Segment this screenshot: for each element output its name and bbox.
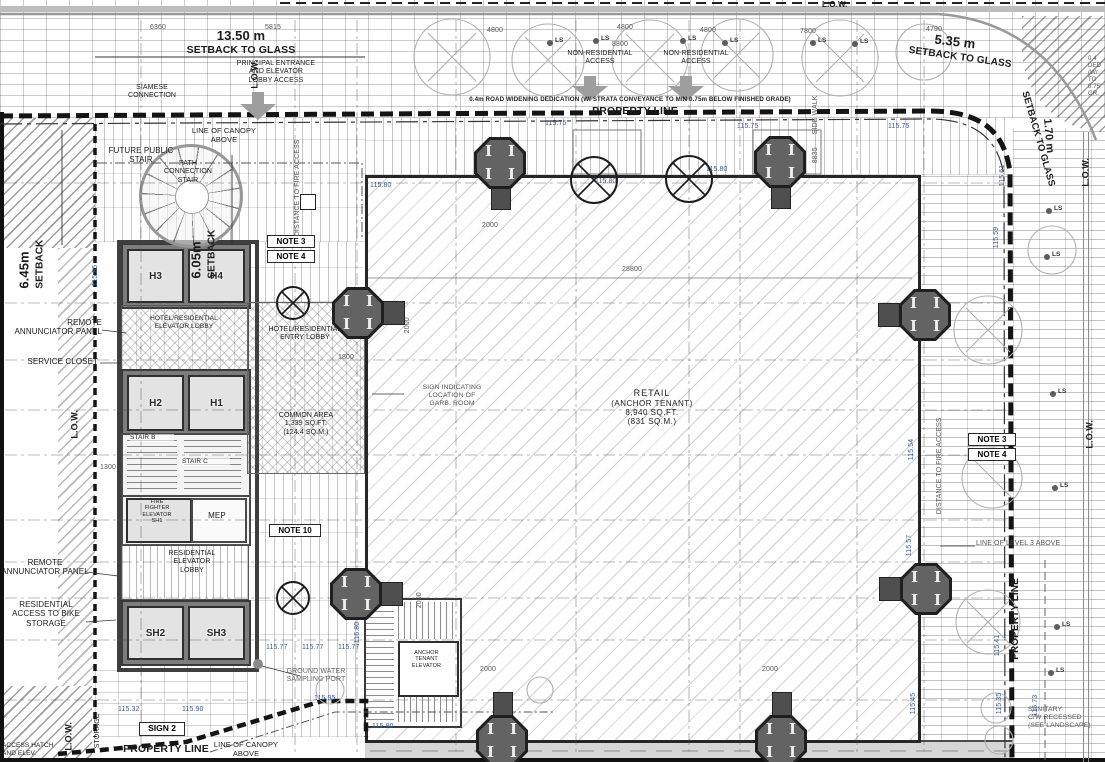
elevation-label: 115.45 bbox=[910, 693, 918, 715]
i-beam-icon: I bbox=[789, 745, 796, 760]
low-label-3: L.O.W. bbox=[1080, 158, 1091, 187]
elevation-label: 115.77 bbox=[302, 644, 324, 652]
light-standard-icon bbox=[1046, 208, 1052, 214]
setback-top-left-label: SETBACK TO GLASS bbox=[168, 44, 314, 56]
note4-box-right: NOTE 4 bbox=[968, 448, 1016, 461]
light-standard-label: LS bbox=[818, 37, 826, 44]
i-beam-icon: I bbox=[788, 166, 795, 181]
retail-area-ft: 8,940 SQ.FT. bbox=[582, 408, 722, 417]
note10-box: NOTE 10 bbox=[269, 524, 321, 537]
i-beam-icon: I bbox=[343, 294, 350, 309]
sign2-box: SIGN 2 bbox=[139, 722, 185, 736]
escalator-south-flight bbox=[398, 695, 455, 722]
setback-left-inner-value: 6.05m bbox=[188, 241, 203, 278]
retail-label-block: RETAIL (ANCHOR TENANT) 8,940 SQ.FT. (831… bbox=[582, 388, 722, 427]
elevation-label: 115.61 bbox=[999, 165, 1007, 187]
frame-bottom bbox=[0, 758, 1105, 762]
structural-column: IIII bbox=[902, 292, 948, 338]
structural-column: IIII bbox=[335, 290, 381, 336]
retail-name: RETAIL bbox=[582, 388, 722, 399]
stair-b-label: STAIR B bbox=[130, 434, 174, 442]
structural-column: IIII bbox=[903, 566, 949, 612]
sidewalk-label: SIDE WALK bbox=[812, 95, 820, 134]
light-standard-icon bbox=[722, 40, 728, 46]
light-standard-icon bbox=[1054, 624, 1060, 630]
structural-column: IIII bbox=[757, 139, 803, 185]
i-beam-icon: I bbox=[910, 319, 917, 334]
principal-entrance-label: PRINCIPAL ENTRANCE AND ELEVATOR LOBBY AC… bbox=[213, 60, 339, 85]
light-standard-label: LS bbox=[555, 37, 563, 44]
dimension-label: 1300 bbox=[100, 464, 116, 472]
service-closet-label: SERVICE CLOSET bbox=[0, 357, 98, 366]
walk-above-retail bbox=[365, 118, 1013, 175]
column-body: IIII bbox=[333, 571, 379, 617]
i-beam-icon: I bbox=[341, 575, 348, 590]
light-standard-icon bbox=[1048, 670, 1054, 676]
remote-annunciator-label-1: REMOTE ANNUNCIATOR PANEL bbox=[0, 318, 102, 337]
i-beam-icon: I bbox=[910, 296, 917, 311]
column-body: IIII bbox=[335, 290, 381, 336]
i-beam-icon: I bbox=[366, 294, 373, 309]
level3-line-label: LINE OF LEVEL 3 ABOVE bbox=[976, 540, 1102, 548]
dimension-label: 28800 bbox=[622, 266, 642, 274]
setback-right-value: 1.70 m bbox=[1040, 118, 1056, 154]
elevation-label: 115.35 bbox=[996, 693, 1004, 715]
setback-left-upper: 6.45m SETBACK bbox=[15, 240, 46, 289]
i-beam-icon: I bbox=[911, 570, 918, 585]
common-area-label: COMMON AREA 1,339 SQ.FT. (124.4 SQ.M.) bbox=[253, 412, 359, 437]
dimension-label: 4800 bbox=[487, 27, 503, 35]
i-beam-icon: I bbox=[765, 166, 772, 181]
i-beam-icon: I bbox=[510, 722, 517, 737]
i-beam-icon: I bbox=[510, 745, 517, 760]
dimension-label: 2000 bbox=[482, 222, 498, 230]
light-standard-label: LS bbox=[1060, 482, 1068, 489]
elevation-label: 115.75 bbox=[888, 123, 910, 131]
bike-storage-label: RESIDENTIAL ACCESS TO BIKE STORAGE bbox=[0, 600, 92, 628]
non-residential-label-1: NON-RESIDENTIAL ACCESS bbox=[560, 50, 640, 67]
setback-left-inner-label: SETBACK bbox=[206, 230, 218, 279]
dimension-label: 2000 bbox=[480, 666, 496, 674]
dimension-label: 2000 bbox=[762, 666, 778, 674]
i-beam-icon: I bbox=[508, 144, 515, 159]
i-beam-icon: I bbox=[765, 143, 772, 158]
light-standard-label: LS bbox=[1056, 667, 1064, 674]
light-standard-icon bbox=[1050, 391, 1056, 397]
retail-area-m: (831 SQ.M.) bbox=[582, 417, 722, 426]
elevation-label: 115.80 bbox=[372, 723, 394, 731]
light-standard-icon bbox=[810, 40, 816, 46]
i-beam-icon: I bbox=[485, 144, 492, 159]
i-beam-icon: I bbox=[788, 143, 795, 158]
access-hatch-label: ACCESS HATCH AND ELEV. bbox=[2, 742, 97, 757]
retail-tenant: (ANCHOR TENANT) bbox=[582, 399, 722, 408]
ff-elevator-label: FIRE FIGHTER ELEVATOR SH1 bbox=[127, 499, 187, 525]
site-plan-drawing: H3 H4 H2 H1 SH2 SH3 bbox=[0, 0, 1105, 762]
light-standard-icon bbox=[1044, 254, 1050, 260]
fire-distance-right-label: DISTANCE TO FIRE ACCESS bbox=[936, 417, 944, 514]
column-body: IIII bbox=[758, 718, 804, 762]
note3-box-left: NOTE 3 bbox=[267, 235, 315, 248]
i-beam-icon: I bbox=[933, 296, 940, 311]
property-line-right-label: PROPERTY LINE bbox=[1010, 578, 1022, 660]
elevation-label: 115.54 bbox=[908, 439, 916, 461]
i-beam-icon: I bbox=[487, 745, 494, 760]
column-body: IIII bbox=[902, 292, 948, 338]
light-standard-label: LS bbox=[1062, 621, 1070, 628]
elevation-label: 115.75 bbox=[545, 120, 567, 128]
escalator-north-flight bbox=[398, 602, 455, 639]
i-beam-icon: I bbox=[508, 167, 515, 182]
i-beam-icon: I bbox=[341, 598, 348, 613]
i-beam-icon: I bbox=[911, 593, 918, 608]
escalator-west-flight bbox=[366, 602, 394, 720]
i-beam-icon: I bbox=[766, 745, 773, 760]
i-beam-icon: I bbox=[934, 570, 941, 585]
core-outline bbox=[117, 240, 259, 672]
light-standard-label: LS bbox=[730, 37, 738, 44]
structural-column: IIII bbox=[758, 718, 804, 762]
canopy-label-bottom: LINE OF CANOPY ABOVE bbox=[200, 741, 292, 759]
dimension-label: 4800 bbox=[617, 24, 633, 32]
elevation-label: 115.59 bbox=[993, 227, 1001, 249]
dimension-label: 8800 bbox=[612, 41, 628, 49]
stair-c-label: STAIR C bbox=[182, 458, 230, 466]
elevation-label: 115.80 bbox=[706, 166, 728, 174]
i-beam-icon: I bbox=[364, 598, 371, 613]
light-standard-icon bbox=[1052, 485, 1058, 491]
elevation-label: 115.41 bbox=[994, 635, 1002, 657]
fire-distance-left-label: DISTANCE TO FIRE ACCESS bbox=[294, 139, 302, 236]
elevation-label: 115.32 bbox=[118, 706, 140, 714]
low-label-4: L.O.W. bbox=[69, 410, 80, 439]
dimension-label: 6360 bbox=[150, 24, 166, 32]
remote-annunciator-label-2: REMOTE ANNUNCIATOR PANEL bbox=[0, 558, 90, 577]
elevation-label: 115.80 bbox=[354, 622, 362, 644]
light-standard-icon bbox=[680, 38, 686, 44]
note4-box-left: NOTE 4 bbox=[267, 250, 315, 263]
elevation-label: 115.77 bbox=[338, 644, 360, 652]
principal-entrance-arrow-icon bbox=[240, 92, 276, 120]
elevation-label: 115.80 bbox=[370, 182, 392, 190]
i-beam-icon: I bbox=[933, 319, 940, 334]
dimension-label: 8835 bbox=[812, 147, 820, 163]
res-elev-lobby-label: RESIDENTIAL ELEVATOR LOBBY bbox=[152, 550, 232, 575]
setback-left-upper-label: SETBACK bbox=[34, 240, 46, 289]
light-standard-icon bbox=[852, 41, 858, 47]
road-widening-right-fragment: 0.4 DED (W/ TO 0.75 GR. bbox=[1088, 56, 1105, 98]
hatch-wedge-nw bbox=[0, 118, 95, 248]
i-beam-icon: I bbox=[766, 722, 773, 737]
dimension-label: 2000 bbox=[416, 592, 424, 608]
elevation-label: 115.57 bbox=[906, 535, 914, 557]
light-standard-label: LS bbox=[1052, 251, 1060, 258]
sign-location-note: SIGN INDICATING LOCATION OF GARB. ROOM bbox=[404, 384, 500, 408]
low-label-6: L.O.W. bbox=[1084, 420, 1095, 449]
i-beam-icon: I bbox=[343, 317, 350, 332]
i-beam-icon: I bbox=[789, 722, 796, 737]
property-line-top-label: PROPERTY LINE bbox=[573, 105, 697, 117]
elevation-label: 115.77 bbox=[266, 644, 288, 652]
low-label-1: L.O.W. bbox=[249, 60, 260, 89]
light-standard-icon bbox=[593, 38, 599, 44]
low-strip-top bbox=[0, 6, 1105, 12]
light-standard-label: LS bbox=[1054, 205, 1062, 212]
frame-left bbox=[0, 112, 4, 762]
mep-label: MEP bbox=[192, 511, 242, 520]
light-standard-label: LS bbox=[688, 35, 696, 42]
column-body: IIII bbox=[477, 140, 523, 186]
i-beam-icon: I bbox=[364, 575, 371, 590]
setback-left-inner: 6.05m SETBACK bbox=[187, 230, 218, 279]
elevation-label: 115.75 bbox=[737, 123, 759, 131]
i-beam-icon: I bbox=[366, 317, 373, 332]
column-body: IIII bbox=[903, 566, 949, 612]
elevation-label: 115.80 bbox=[595, 178, 617, 186]
dimension-label: 7800 bbox=[800, 28, 816, 36]
light-standard-label: LS bbox=[1058, 388, 1066, 395]
dimension-label: 1800 bbox=[338, 354, 354, 362]
elevation-label: 115.95 bbox=[314, 695, 336, 703]
groundwater-label: GROUND WATER SAMPLING PORT bbox=[272, 668, 360, 685]
setback-left-upper-value: 6.45m bbox=[16, 251, 31, 288]
elevation-label: 115.85 bbox=[92, 265, 100, 287]
column-body: IIII bbox=[479, 718, 525, 762]
light-standard-label: LS bbox=[601, 35, 609, 42]
light-standard-label: LS bbox=[860, 38, 868, 45]
siamese-connection-label: SIAMESE CONNECTION bbox=[118, 84, 186, 101]
dimension-label: 5815 bbox=[265, 24, 281, 32]
dimension-label: 4790 bbox=[926, 26, 942, 34]
i-beam-icon: I bbox=[485, 167, 492, 182]
non-residential-label-2: NON-RESIDENTIAL ACCESS bbox=[656, 50, 736, 67]
i-beam-icon: I bbox=[934, 593, 941, 608]
structural-column: IIII bbox=[333, 571, 379, 617]
drain-box-icon bbox=[300, 194, 316, 210]
canopy-label-top: LINE OF CANOPY ABOVE bbox=[180, 127, 268, 145]
low-label-2: L.O.W. bbox=[822, 0, 848, 9]
structural-column: IIII bbox=[479, 718, 525, 762]
note3-box-right: NOTE 3 bbox=[968, 433, 1016, 446]
structural-column: IIII bbox=[477, 140, 523, 186]
elevation-label: 115.90 bbox=[182, 706, 204, 714]
anchor-elevator-label: ANCHOR TENANT ELEVATOR bbox=[400, 650, 453, 669]
dimension-label: 4800 bbox=[700, 27, 716, 35]
east-walk-paving bbox=[915, 175, 1013, 762]
path-stair-label: PATH CONNECTION STAIR bbox=[151, 160, 225, 185]
elevator-lobby-label: HOTEL/RESIDENTIAL ELEVATOR LOBBY bbox=[123, 315, 245, 330]
elevation-label: 115.73 bbox=[1032, 695, 1040, 717]
road-widening-note: 0.4m ROAD WIDENING DEDICATION (W/ STRATA… bbox=[440, 96, 820, 103]
column-body: IIII bbox=[757, 139, 803, 185]
i-beam-icon: I bbox=[487, 722, 494, 737]
light-standard-icon bbox=[547, 40, 553, 46]
